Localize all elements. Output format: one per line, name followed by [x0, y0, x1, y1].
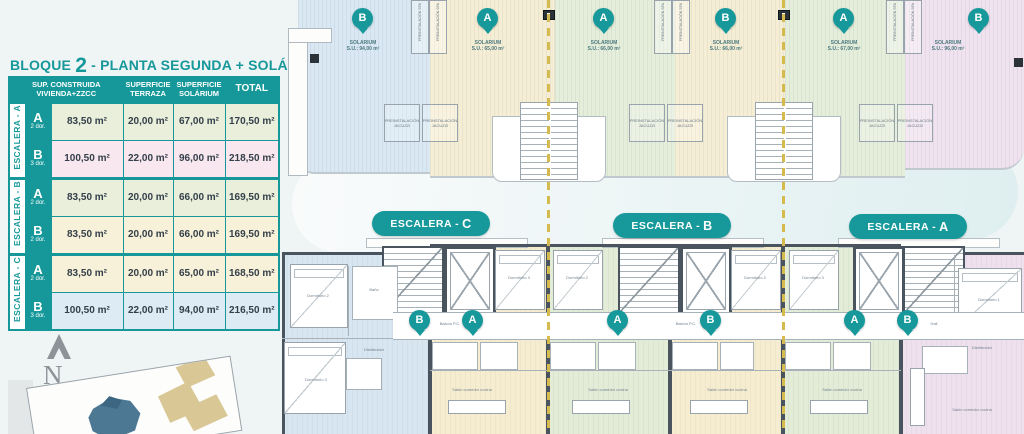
apartment-pin: A [593, 8, 614, 29]
room-label: Salón comedor cocina [452, 388, 492, 393]
jacuzzi-preinstall-box: PREINSTALACIÓN JACUZZI [384, 104, 420, 142]
solarium-zone-a-b [905, 0, 1024, 170]
value-construida: 83,50 m² [51, 178, 123, 216]
value-solarium: 66,00 m² [173, 216, 225, 254]
kitchen-island [572, 400, 630, 414]
room-label: Dormitorio 3 [305, 378, 327, 383]
spa-preinstall-box: PREINSTALACIÓN SPA [886, 0, 904, 54]
page-title: BLOQUE 2 - PLANTA SEGUNDA + SOLÁRIUM [10, 54, 282, 78]
room-divider [954, 255, 955, 312]
table-header-row: SUP. CONSTRUIDA VIVIENDA+ZZCC SUPERFICIE… [9, 77, 279, 102]
jacuzzi-preinstall-box: PREINSTALACIÓN JACUZZI [422, 104, 458, 142]
value-total: 168,50 m² [225, 254, 279, 292]
table-row: B 3 dor. 100,50 m² 22,00 m² 96,00 m² 218… [9, 140, 279, 178]
room-label: Baño [369, 288, 378, 293]
apartment-pin: A [607, 310, 628, 331]
unit-letter-cell: B 3 dor. [25, 292, 51, 330]
apartment-pin: B [409, 310, 430, 331]
bathroom [352, 266, 398, 320]
apartment-pin: B [897, 310, 918, 331]
room-label: Distribuidor [364, 348, 384, 353]
value-total: 218,50 m² [225, 140, 279, 178]
value-terraza: 22,00 m² [123, 292, 173, 330]
escalera-a-pill: ESCALERA -A [849, 214, 967, 239]
value-construida: 83,50 m² [51, 254, 123, 292]
roof-edge-band [288, 28, 332, 43]
value-solarium: 65,00 m² [173, 254, 225, 292]
roof-edge-band [288, 28, 308, 176]
small-room [785, 342, 831, 370]
value-terraza: 20,00 m² [123, 216, 173, 254]
jacuzzi-preinstall-box: PREINSTALACIÓN JACUZZI [667, 104, 703, 142]
table-row: ESCALERA - A A 2 dor. 83,50 m² 20,00 m² … [9, 102, 279, 140]
title-block-number: 2 [75, 54, 87, 77]
spa-preinstall-box: PREINSTALACIÓN SPA [654, 0, 672, 54]
table-row: ESCALERA - B A 2 dor. 83,50 m² 20,00 m² … [9, 178, 279, 216]
escalera-b-pill: ESCALERA -B [613, 213, 731, 238]
kitchen-island [810, 400, 868, 414]
unit-letter-cell: A 2 dor. [25, 178, 51, 216]
table-row: ESCALERA - C A 2 dor. 83,50 m² 20,00 m² … [9, 254, 279, 292]
surface-table: SUP. CONSTRUIDA VIVIENDA+ZZCC SUPERFICIE… [8, 76, 280, 331]
room-label: Salón comedor cocina [952, 408, 992, 413]
apartment-pin: B [700, 310, 721, 331]
room-label: Salón comedor cocina [588, 388, 628, 393]
room-label: Dormitorio 2 [307, 294, 329, 299]
small-room [432, 342, 478, 370]
joint-marker [310, 54, 319, 63]
apartment-pin: B [968, 8, 989, 29]
header-terraza: SUPERFICIE TERRAZA [123, 77, 173, 102]
small-room [922, 346, 968, 374]
header-construida: SUP. CONSTRUIDA VIVIENDA+ZZCC [9, 77, 123, 102]
value-solarium: 94,00 m² [173, 292, 225, 330]
value-construida: 100,50 m² [51, 140, 123, 178]
room-divider [430, 370, 901, 371]
kitchen-island [690, 400, 748, 414]
value-total: 169,50 m² [225, 178, 279, 216]
solarium-zone-label: SOLARIUMS.U.: 94,00 m² [347, 40, 380, 52]
solarium-zone-label: SOLARIUMS.U.: 66,00 m² [710, 40, 743, 52]
spa-preinstall-box: PREINSTALACIÓN SPA [429, 0, 447, 54]
jacuzzi-preinstall-box: PREINSTALACIÓN JACUZZI [897, 104, 933, 142]
spa-preinstall-box: PREINSTALACIÓN SPA [411, 0, 429, 54]
expansion-joint-line [782, 0, 785, 430]
solarium-zone-label: SOLARIUMS.U.: 65,00 m² [472, 40, 505, 52]
spa-preinstall-box: PREINSTALACIÓN SPA [904, 0, 922, 54]
small-room [346, 358, 382, 390]
solarium-zone-label: SOLARIUMS.U.: 67,00 m² [828, 40, 861, 52]
jacuzzi-preinstall-box: PREINSTALACIÓN JACUZZI [629, 104, 665, 142]
unit-letter-cell: B 2 dor. [25, 216, 51, 254]
group-label-escalera-b: ESCALERA - B [9, 178, 25, 254]
elevator [444, 246, 496, 316]
apartment-pin: B [715, 8, 736, 29]
header-total: TOTAL [225, 77, 279, 102]
spa-preinstall-box: PREINSTALACIÓN SPA [672, 0, 690, 54]
value-terraza: 20,00 m² [123, 178, 173, 216]
value-construida: 100,50 m² [51, 292, 123, 330]
apartment-pin: A [844, 310, 865, 331]
value-solarium: 66,00 m² [173, 178, 225, 216]
kitchen-counter [910, 368, 925, 426]
table-row: B 2 dor. 83,50 m² 20,00 m² 66,00 m² 169,… [9, 216, 279, 254]
solarium-zone-label: SOLARIUMS.U.: 96,00 m² [932, 40, 965, 52]
floor-plan: Dormitorio 2 Dormitorio 3 Baño Distribui… [282, 238, 1024, 434]
small-room [480, 342, 518, 370]
room-label: Dormitorio 3 [802, 276, 824, 281]
elevator [853, 246, 905, 316]
room-label: Hall [931, 322, 938, 327]
small-room [720, 342, 754, 370]
value-construida: 83,50 m² [51, 216, 123, 254]
small-room [833, 342, 871, 370]
small-room [598, 342, 636, 370]
value-solarium: 96,00 m² [173, 140, 225, 178]
apartment-pin: A [833, 8, 854, 29]
group-label-escalera-c: ESCALERA - C [9, 254, 25, 330]
escalera-c-pill: ESCALERA -C [372, 211, 490, 236]
expansion-joint-line [547, 0, 550, 430]
stairs [618, 246, 680, 314]
small-room [672, 342, 718, 370]
value-construida: 83,50 m² [51, 102, 123, 140]
apartment-pin: A [477, 8, 498, 29]
title-block-word: BLOQUE [10, 57, 71, 73]
room-label: Dormitorio 3 [508, 276, 530, 281]
group-label-escalera-a: ESCALERA - A [9, 102, 25, 178]
solarium-plan: PREINSTALACIÓN SPA PREINSTALACIÓN SPA PR… [288, 0, 1024, 182]
solarium-zone-label: SOLARIUMS.U.: 66,00 m² [588, 40, 621, 52]
table-row: B 3 dor. 100,50 m² 22,00 m² 94,00 m² 216… [9, 292, 279, 330]
value-total: 170,50 m² [225, 102, 279, 140]
value-total: 216,50 m² [225, 292, 279, 330]
room-label: Balcón P.C. [440, 322, 461, 327]
small-room [550, 342, 596, 370]
floorplan-sheet: BLOQUE 2 - PLANTA SEGUNDA + SOLÁRIUM SUP… [0, 0, 1024, 434]
joint-marker [1014, 58, 1023, 67]
room-label: Dormitorio 2 [744, 276, 766, 281]
value-solarium: 67,00 m² [173, 102, 225, 140]
elevator [680, 246, 732, 316]
value-terraza: 20,00 m² [123, 102, 173, 140]
kitchen-island [448, 400, 506, 414]
header-solarium: SUPERFICIE SOLÁRIUM [173, 77, 225, 102]
value-terraza: 22,00 m² [123, 140, 173, 178]
value-total: 169,50 m² [225, 216, 279, 254]
room-label: Balcón P.C. [676, 322, 697, 327]
stairs [903, 246, 965, 314]
value-terraza: 20,00 m² [123, 254, 173, 292]
room-divider [348, 266, 349, 336]
room-label: Salón comedor cocina [822, 388, 862, 393]
jacuzzi-preinstall-box: PREINSTALACIÓN JACUZZI [859, 104, 895, 142]
room-label: Dormitorio 2 [566, 276, 588, 281]
unit-letter-cell: B 3 dor. [25, 140, 51, 178]
room-label: Distribuidor [972, 346, 992, 351]
room-divider [282, 338, 393, 339]
unit-letter-cell: A 2 dor. [25, 102, 51, 140]
room-label: Dormitorio 1 [978, 298, 1000, 303]
unit-letter-cell: A 2 dor. [25, 254, 51, 292]
apartment-pin: B [352, 8, 373, 29]
room-label: Salón comedor cocina [707, 388, 747, 393]
apartment-pin: A [462, 310, 483, 331]
